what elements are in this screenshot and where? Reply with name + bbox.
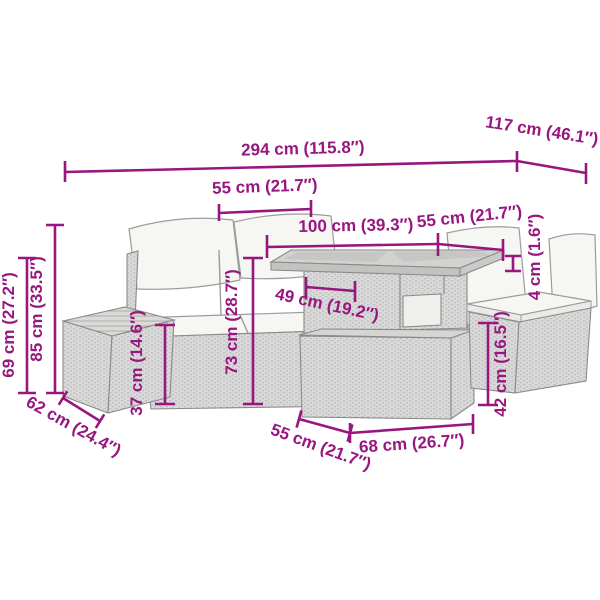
dim-overall-depth: 117 cm (46.1″) xyxy=(484,112,600,184)
dim-label-total-height: 85 cm (33.5″) xyxy=(27,256,46,361)
dim-label-seat-unit-height: 69 cm (27.2″) xyxy=(0,272,18,377)
dim-label-overall-width: 294 cm (115.8″) xyxy=(241,137,365,159)
dim-label-tabletop-thickness: 4 cm (1.6″) xyxy=(525,214,544,301)
dim-total-height: 85 cm (33.5″) xyxy=(27,225,64,393)
dim-label-sofa-seat-width: 55 cm (21.7″) xyxy=(212,175,318,198)
right-ottoman-side-face xyxy=(515,308,591,393)
left-ottoman-front-face xyxy=(63,321,112,413)
dim-label-stool-height: 42 cm (16.5″) xyxy=(491,311,510,416)
table-base-front xyxy=(300,336,451,419)
dim-label-table-height: 73 cm (28.7″) xyxy=(222,269,241,374)
dim-label-overall-depth: 117 cm (46.1″) xyxy=(484,112,600,149)
left-ottoman xyxy=(63,307,174,413)
dim-line xyxy=(219,209,311,213)
dim-label-table-length: 100 cm (39.3″) xyxy=(298,215,413,236)
dim-line xyxy=(65,161,517,172)
dim-line xyxy=(517,161,586,173)
dim-label-table-base-depth: 55 cm (21.7″) xyxy=(268,420,374,474)
product-dimension-diagram: 294 cm (115.8″) 117 cm (46.1″) 55 cm (21… xyxy=(0,0,600,600)
pedestal-opening xyxy=(403,294,441,327)
right-ottoman xyxy=(467,292,591,393)
diagram-canvas: 294 cm (115.8″) 117 cm (46.1″) 55 cm (21… xyxy=(0,0,600,600)
dim-table-base-width: 68 cm (26.7″) xyxy=(350,414,473,457)
dim-label-seat-height: 37 cm (14.6″) xyxy=(127,310,146,415)
dim-label-table-base-width: 68 cm (26.7″) xyxy=(358,430,465,456)
